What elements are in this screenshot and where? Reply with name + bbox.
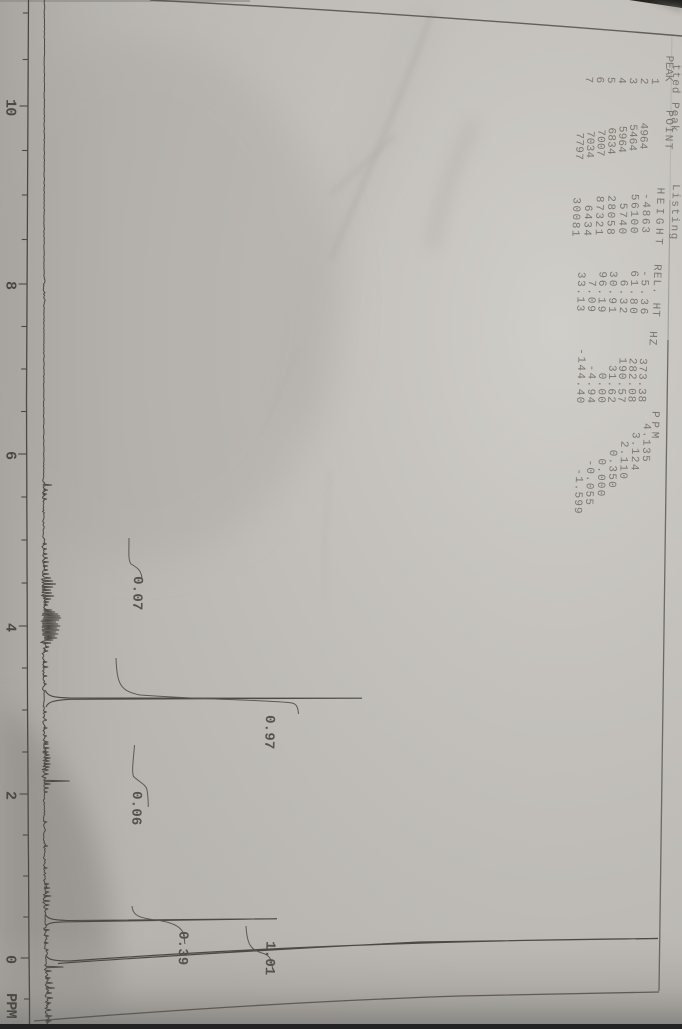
svg-text:0.06: 0.06 bbox=[127, 791, 144, 826]
svg-text:HEIGHT: HEIGHT bbox=[652, 187, 666, 248]
svg-text:4: 4 bbox=[1, 623, 18, 632]
svg-text:0: 0 bbox=[1, 955, 18, 964]
svg-text:1.01: 1.01 bbox=[261, 941, 278, 976]
svg-text:PEAK: PEAK bbox=[662, 55, 675, 82]
svg-text:7797: 7797 bbox=[572, 132, 585, 160]
svg-text:30081: 30081 bbox=[568, 197, 581, 238]
svg-text:Listing: Listing bbox=[667, 184, 681, 241]
svg-text:-144.40: -144.40 bbox=[573, 348, 587, 405]
svg-text:33.13: 33.13 bbox=[573, 272, 586, 313]
svg-text:POINT: POINT bbox=[661, 110, 674, 151]
svg-text:5740: 5740 bbox=[615, 203, 628, 236]
svg-text:HZ: HZ bbox=[646, 331, 658, 347]
svg-text:7: 7 bbox=[582, 76, 594, 83]
svg-text:2: 2 bbox=[1, 791, 18, 800]
svg-text:0.39: 0.39 bbox=[174, 931, 191, 966]
svg-text:0.97: 0.97 bbox=[260, 715, 277, 750]
svg-text:6: 6 bbox=[1, 451, 18, 460]
svg-text:10: 10 bbox=[1, 99, 18, 116]
svg-text:-1.599: -1.599 bbox=[571, 468, 584, 515]
svg-text:PPM: PPM bbox=[2, 993, 19, 1019]
svg-text:0.07: 0.07 bbox=[128, 576, 145, 611]
svg-text:8: 8 bbox=[1, 281, 18, 290]
